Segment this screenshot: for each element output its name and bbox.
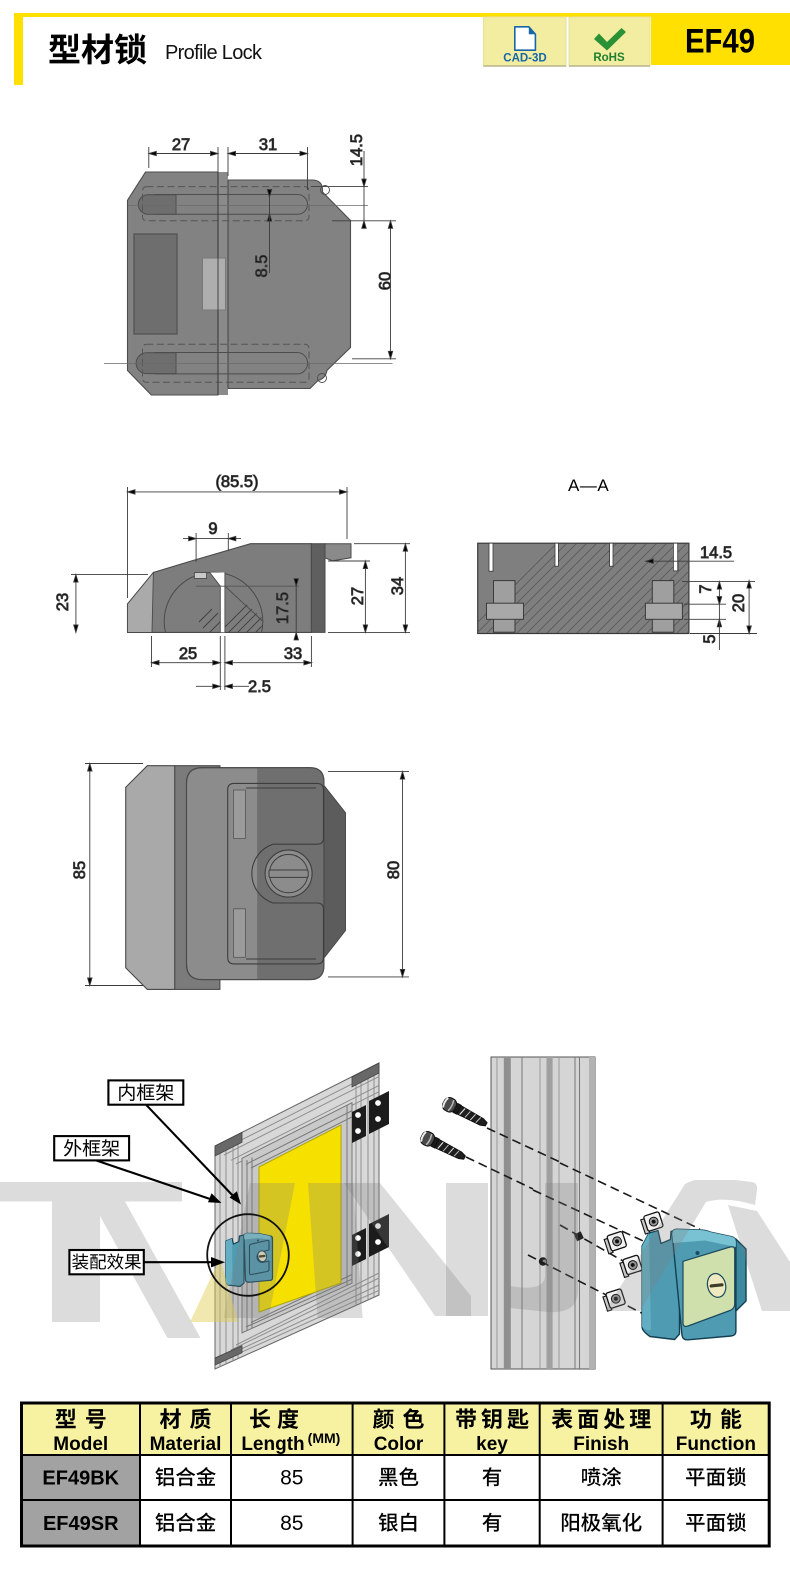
svg-text:27: 27	[172, 136, 190, 154]
svg-text:85: 85	[280, 1512, 303, 1535]
svg-text:Length: Length	[241, 1434, 304, 1455]
svg-text:(MM): (MM)	[308, 1430, 341, 1446]
svg-text:14.5: 14.5	[700, 544, 732, 562]
svg-text:Profile Lock: Profile Lock	[165, 42, 263, 64]
svg-text:Finish: Finish	[573, 1434, 629, 1455]
svg-text:85: 85	[280, 1467, 303, 1490]
svg-text:RoHS: RoHS	[593, 52, 625, 64]
svg-text:23: 23	[54, 593, 72, 611]
svg-text:EF49SR: EF49SR	[43, 1513, 119, 1535]
svg-text:33: 33	[284, 645, 302, 663]
svg-text:31: 31	[259, 136, 277, 154]
svg-text:20: 20	[730, 594, 748, 612]
svg-text:Function: Function	[676, 1434, 756, 1455]
svg-text:34: 34	[389, 577, 407, 595]
svg-text:Model: Model	[53, 1434, 108, 1455]
svg-text:Color: Color	[374, 1434, 424, 1455]
svg-text:EF49: EF49	[685, 23, 755, 61]
svg-text:Material: Material	[150, 1434, 222, 1455]
svg-text:EF49BK: EF49BK	[42, 1468, 119, 1490]
svg-text:5: 5	[701, 634, 719, 643]
svg-text:85: 85	[71, 861, 89, 879]
svg-text:9: 9	[208, 520, 217, 538]
svg-text:8.5: 8.5	[253, 255, 271, 278]
svg-text:A—A: A—A	[568, 476, 609, 495]
svg-text:17.5: 17.5	[274, 592, 292, 624]
svg-text:(85.5): (85.5)	[215, 473, 258, 491]
svg-text:key: key	[476, 1434, 508, 1455]
svg-text:25: 25	[179, 645, 197, 663]
svg-text:80: 80	[385, 861, 403, 879]
svg-text:14.5: 14.5	[348, 134, 366, 166]
svg-text:7: 7	[697, 584, 715, 593]
svg-text:CAD-3D: CAD-3D	[503, 53, 546, 65]
svg-text:2.5: 2.5	[248, 678, 271, 696]
svg-text:60: 60	[377, 272, 395, 290]
svg-text:27: 27	[349, 587, 367, 605]
